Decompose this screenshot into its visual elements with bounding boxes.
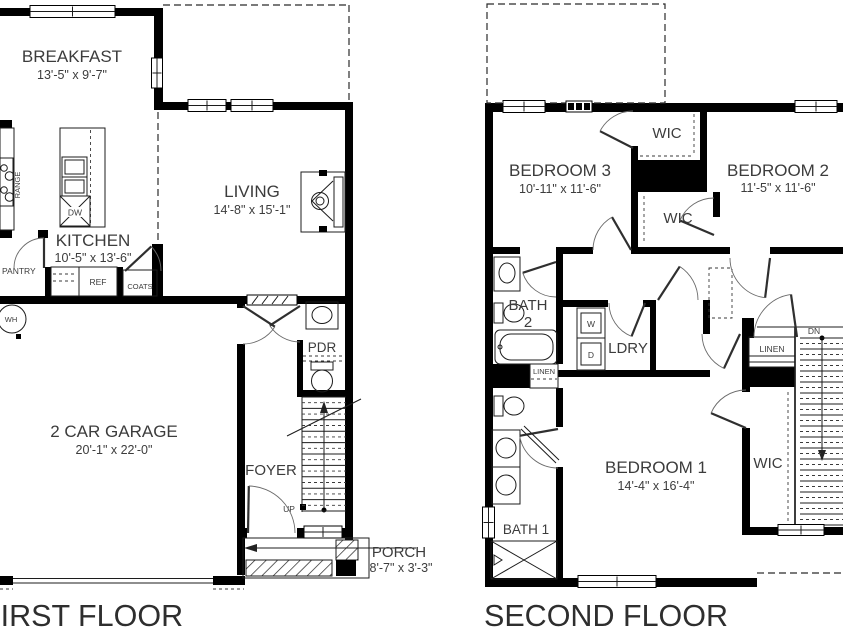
- wh-label: WH: [5, 315, 18, 324]
- dryer-icon: D: [577, 338, 605, 370]
- refrigerator-icon: REF: [79, 267, 117, 296]
- bedroom3-dims: 10'-11" x 11'-6": [519, 182, 601, 196]
- kitchen-dims: 10'-5" x 13'-6": [55, 251, 132, 265]
- bedroom1-label: BEDROOM 1: [605, 458, 707, 477]
- range-counter: [0, 128, 14, 230]
- floor-plan-canvas: DW REF COATS WH: [0, 0, 843, 632]
- floor-plan-page: DW REF COATS WH: [0, 0, 843, 632]
- wic-top-label: WIC: [652, 125, 681, 142]
- second-floor-plan: W D BEDROOM 3 10'-11" x 11'-6" WIC WIC B…: [484, 4, 843, 632]
- pantry-label: PANTRY: [2, 266, 36, 276]
- bathtub-icon: [495, 330, 557, 364]
- range-label: RANGE: [13, 172, 22, 199]
- wic-bedroom1-label: WIC: [753, 455, 782, 472]
- coats-closet: COATS: [123, 270, 157, 296]
- dn-label: DN: [808, 326, 820, 336]
- wc-toilet-icon: [494, 396, 524, 416]
- bedroom3-label: BEDROOM 3: [509, 161, 611, 180]
- shower-icon: [491, 541, 557, 579]
- dishwasher-icon: DW: [60, 196, 90, 226]
- bedroom2-label: BEDROOM 2: [727, 161, 829, 180]
- bath1-sink-icons: [492, 430, 520, 504]
- kitchen-label: KITCHEN: [56, 231, 131, 250]
- bath2-sink-icon: [494, 257, 520, 291]
- up-label: UP: [283, 504, 295, 514]
- foyer-label: FOYER: [245, 462, 297, 479]
- garage-label: 2 CAR GARAGE: [50, 422, 178, 441]
- living-label: LIVING: [224, 182, 280, 201]
- breakfast-label: BREAKFAST: [22, 47, 122, 66]
- pdr-sink-icon: [306, 302, 338, 329]
- ldry-label: LDRY: [608, 340, 648, 357]
- bath1-label: BATH 1: [503, 522, 549, 537]
- breakfast-dims: 13'-5" x 9'-7": [37, 68, 107, 82]
- bath2-label-line1: BATH: [509, 297, 548, 314]
- cased-opening: [247, 295, 297, 305]
- dryer-label: D: [588, 350, 594, 360]
- porch-label: PORCH: [372, 544, 426, 561]
- water-heater-icon: WH: [0, 305, 26, 339]
- garage-door: [0, 579, 244, 590]
- first-floor-title: FIRST FLOOR: [0, 599, 183, 632]
- washer-label: W: [587, 319, 595, 329]
- coats-label: COATS: [127, 282, 152, 291]
- second-floor-title: SECOND FLOOR: [484, 599, 728, 632]
- porch-dims: 8'-7" x 3'-3": [370, 561, 433, 575]
- bedroom2-dims: 11'-5" x 11'-6": [740, 181, 815, 195]
- pdr-label: PDR: [308, 340, 337, 355]
- ref-label: REF: [90, 277, 107, 287]
- dw-label: DW: [68, 208, 82, 218]
- fireplace-icon: [301, 170, 345, 232]
- bedroom1-dims: 14'-4" x 16'-4": [618, 479, 695, 493]
- pdr-toilet-icon: [303, 356, 345, 392]
- staircase-second-floor: [757, 327, 843, 527]
- bath2-label-line2: 2: [524, 314, 532, 331]
- kitchen-cabinet: [51, 267, 79, 296]
- living-dims: 14'-8" x 15'-1": [214, 203, 291, 217]
- washer-icon: W: [577, 308, 605, 338]
- linen-hall-label: LINEN: [759, 344, 784, 354]
- linen-bath-label: LINEN: [533, 367, 555, 376]
- small-window: [566, 101, 592, 112]
- garage-dims: 20'-1" x 22'-0": [76, 443, 153, 457]
